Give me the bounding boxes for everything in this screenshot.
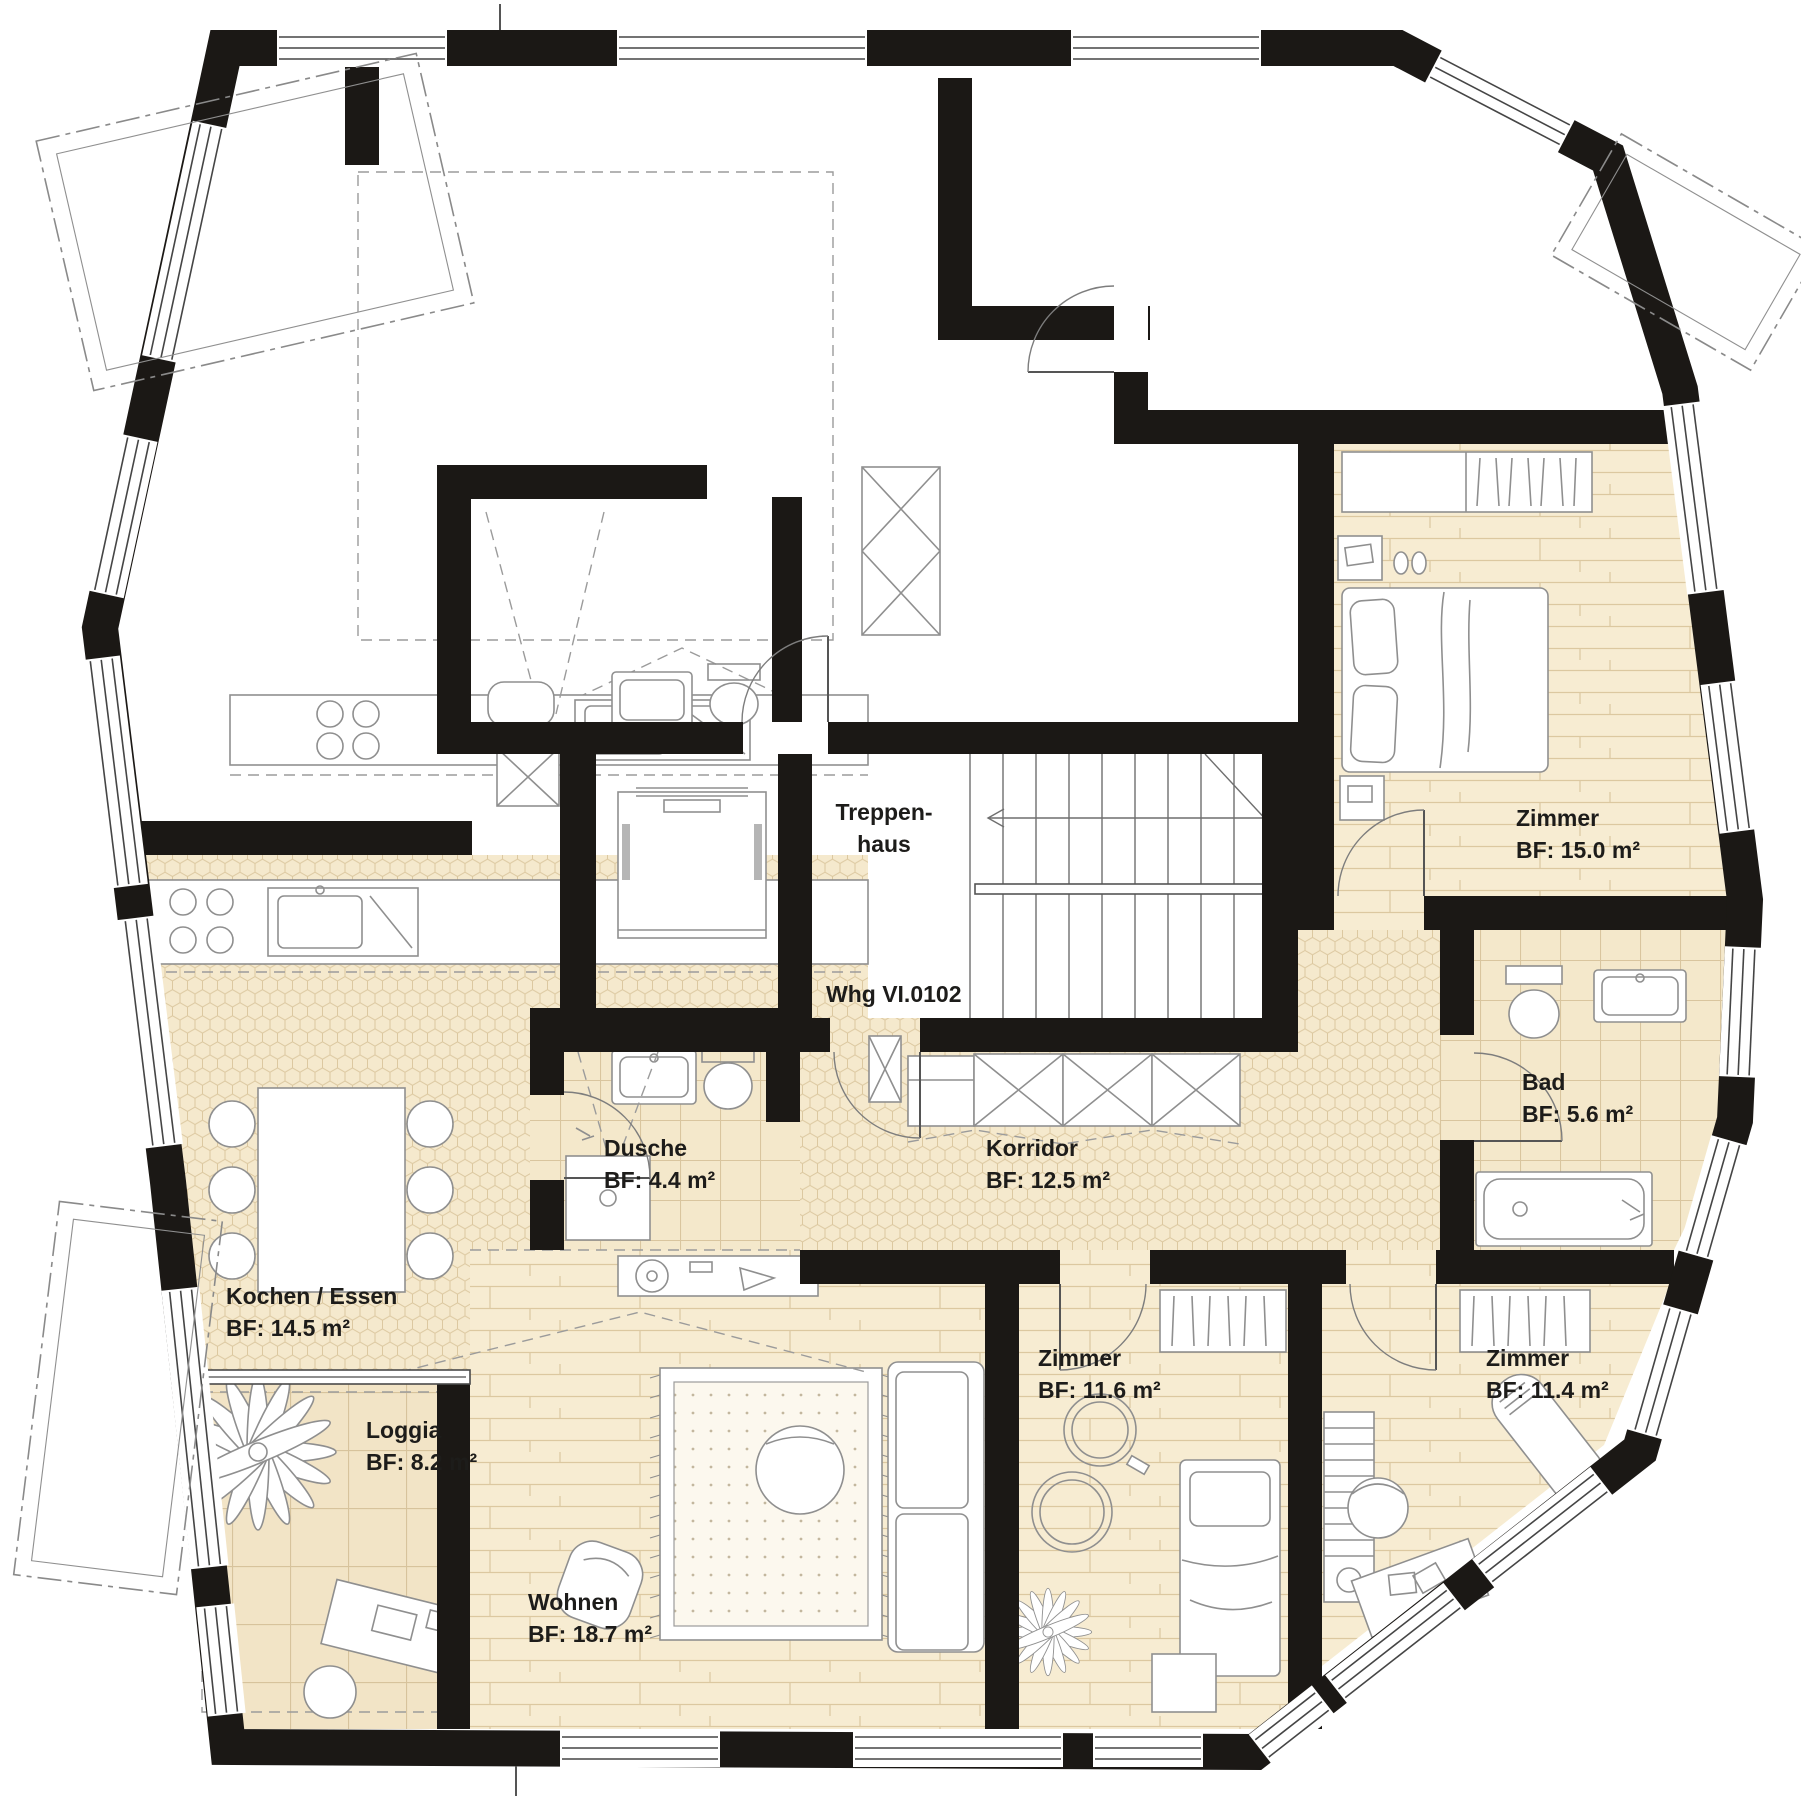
label-kochen-area: BF: 14.5 m² <box>226 1315 350 1341</box>
window <box>1719 946 1763 1078</box>
window <box>277 29 447 67</box>
balcony-top-left <box>36 53 474 390</box>
loggia-glass-wall <box>188 1370 470 1384</box>
label-korridor-area: BF: 12.5 m² <box>986 1167 1110 1193</box>
label-stairwell-line2: haus <box>857 831 911 857</box>
label-kochen-name: Kochen / Essen <box>226 1283 397 1309</box>
window <box>560 1729 720 1767</box>
stair-direction-arrow <box>988 800 1284 836</box>
label-dusche-name: Dusche <box>604 1135 687 1161</box>
sideboard <box>618 1256 818 1296</box>
window <box>87 434 158 598</box>
window <box>1071 29 1261 67</box>
label-dusche-area: BF: 4.4 m² <box>604 1167 716 1193</box>
label-zimmer116-area: BF: 11.6 m² <box>1038 1377 1161 1403</box>
label-zimmer15-area: BF: 15.0 m² <box>1516 837 1640 863</box>
window <box>1425 50 1576 153</box>
bathroom-upper <box>486 512 760 726</box>
elevator <box>618 788 766 938</box>
label-zimmer116-name: Zimmer <box>1038 1345 1121 1371</box>
window <box>82 656 148 889</box>
canopy-dashed-outline <box>358 172 833 640</box>
label-bad-area: BF: 5.6 m² <box>1522 1101 1634 1127</box>
label-stairwell-line1: Treppen- <box>835 799 932 825</box>
stair-handrail <box>975 884 1296 894</box>
window <box>853 1729 1063 1767</box>
floor-bad-door-gap <box>1440 1035 1474 1140</box>
floor-zimmer114-door-gap <box>1346 1250 1436 1284</box>
label-wohnen-area: BF: 18.7 m² <box>528 1621 652 1647</box>
stairs <box>970 754 1296 1018</box>
label-zimmer15-name: Zimmer <box>1516 805 1599 831</box>
label-bad-name: Bad <box>1522 1069 1565 1095</box>
label-loggia-name: Loggia <box>366 1417 442 1443</box>
dining-set <box>209 1088 453 1292</box>
floor-plan-page: Treppen- haus Whg VI.0102 Zimmer BF: 15.… <box>0 0 1801 1800</box>
label-korridor-name: Korridor <box>986 1135 1078 1161</box>
floor-dusche-door-gap <box>530 1095 564 1180</box>
floor-zimmer116-door-gap <box>1060 1250 1150 1284</box>
label-apartment-id: Whg VI.0102 <box>826 981 961 1007</box>
window <box>1093 1729 1203 1767</box>
floor-plan: Treppen- haus Whg VI.0102 Zimmer BF: 15.… <box>0 0 1801 1800</box>
label-wohnen-name: Wohnen <box>528 1589 618 1615</box>
label-zimmer114-name: Zimmer <box>1486 1345 1569 1371</box>
label-zimmer114-area: BF: 11.4 m² <box>1486 1377 1609 1403</box>
window <box>617 29 867 67</box>
label-loggia-area: BF: 8.2 m² <box>366 1449 478 1475</box>
window <box>142 121 230 364</box>
